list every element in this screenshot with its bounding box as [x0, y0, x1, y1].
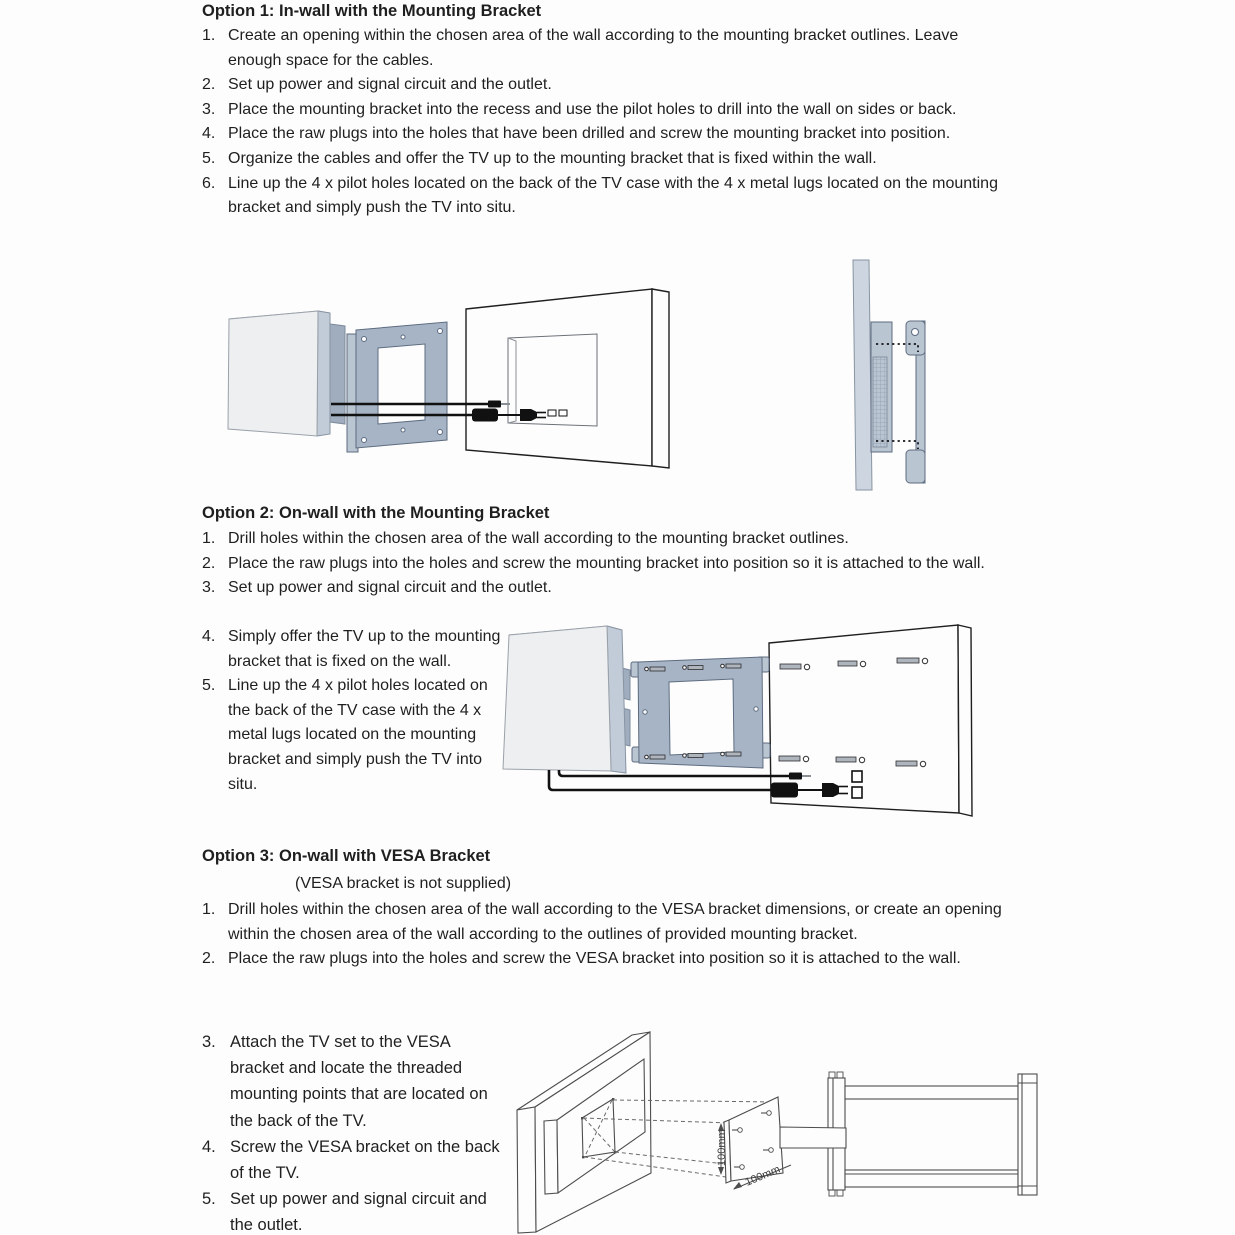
step: 4. Screw the VESA bracket on the back of…	[202, 1134, 502, 1186]
onwall-mounting-bracket	[631, 657, 770, 768]
wall-outlet-socket	[548, 410, 556, 416]
step-number: 4.	[202, 625, 228, 650]
power-plug-icon	[822, 783, 839, 797]
step-text: Attach the TV set to the VESA bracket an…	[230, 1029, 502, 1134]
option1-title: Option 1: In-wall with the Mounting Brac…	[202, 1, 541, 21]
diagram-vesa-bracket: 100mm 100mm	[508, 1026, 1058, 1235]
option2-title: Option 2: On-wall with the Mounting Brac…	[202, 503, 549, 523]
step-text: Set up power and signal circuit and the …	[228, 73, 1013, 98]
step-text: Place the raw plugs into the holes and s…	[228, 552, 1013, 577]
wall-outlet-socket	[559, 410, 567, 416]
step: 3. Set up power and signal circuit and t…	[202, 576, 1013, 601]
step-text: Set up power and signal circuit and the …	[230, 1186, 502, 1235]
step-text: Organize the cables and offer the TV up …	[228, 147, 1013, 172]
step-number: 3.	[202, 1029, 230, 1055]
option3-steps-full: 1. Drill holes within the chosen area of…	[202, 898, 1039, 972]
vesa-tv-back	[517, 1032, 651, 1233]
step: 3. Attach the TV set to the VESA bracket…	[202, 1029, 502, 1134]
step: 4. Place the raw plugs into the holes th…	[202, 122, 1013, 147]
option2-steps-full: 1. Drill holes within the chosen area of…	[202, 527, 1013, 601]
wall-outlet-socket	[852, 771, 862, 782]
step-number: 3.	[202, 98, 228, 123]
step-number: 6.	[202, 172, 228, 197]
step: 5. Line up the 4 x pilot holes located o…	[202, 674, 510, 797]
wall-slot	[838, 661, 857, 666]
signal-jack-icon	[789, 773, 802, 780]
step: 1. Drill holes within the chosen area of…	[202, 898, 1039, 947]
step: 2. Place the raw plugs into the holes an…	[202, 947, 1039, 972]
step: 6. Line up the 4 x pilot holes located o…	[202, 172, 1013, 221]
step-text: Place the mounting bracket into the rece…	[228, 98, 1013, 123]
vesa-wall-frame	[828, 1072, 1037, 1196]
step-number: 1.	[202, 24, 228, 49]
vesa-arm	[780, 1127, 846, 1148]
onwall-tv-panel	[503, 626, 630, 773]
power-adapter-icon	[472, 409, 498, 422]
step-text: Place the raw plugs into the holes and s…	[228, 947, 1039, 972]
step-text: Create an opening within the chosen area…	[228, 24, 1013, 73]
step-number: 2.	[202, 552, 228, 577]
side-view-tv	[853, 260, 872, 490]
option3-steps-column: 3. Attach the TV set to the VESA bracket…	[202, 1029, 502, 1235]
step-text: Line up the 4 x pilot holes located on t…	[228, 674, 510, 797]
inwall-wall-panel	[466, 289, 669, 468]
step-number: 5.	[202, 147, 228, 172]
power-adapter-icon	[771, 783, 798, 798]
step-number: 3.	[202, 576, 228, 601]
step: 2. Place the raw plugs into the holes an…	[202, 552, 1013, 577]
step-number: 2.	[202, 947, 228, 972]
step-number: 4.	[202, 122, 228, 147]
step: 1. Create an opening within the chosen a…	[202, 24, 1013, 73]
step: 1. Drill holes within the chosen area of…	[202, 527, 1013, 552]
wall-slot	[779, 756, 800, 761]
step-text: Set up power and signal circuit and the …	[228, 576, 1013, 601]
diagram-onwall-mounting	[495, 612, 985, 837]
wall-outlet-socket	[852, 787, 862, 798]
signal-jack-icon	[488, 401, 501, 408]
inwall-side-view	[853, 260, 925, 490]
power-plug-icon	[520, 409, 537, 421]
option3-note: (VESA bracket is not supplied)	[295, 872, 511, 896]
step-text: Screw the VESA bracket on the back of th…	[230, 1134, 502, 1186]
step-text: Simply offer the TV up to the mounting b…	[228, 625, 510, 674]
inwall-mounting-bracket	[347, 322, 447, 452]
manual-page: Option 1: In-wall with the Mounting Brac…	[0, 0, 1235, 1235]
step-text: Line up the 4 x pilot holes located on t…	[228, 172, 1013, 221]
step: 4. Simply offer the TV up to the mountin…	[202, 625, 510, 674]
option2-steps-column: 4. Simply offer the TV up to the mountin…	[202, 625, 510, 797]
step: 5. Organize the cables and offer the TV …	[202, 147, 1013, 172]
onwall-wall-panel	[769, 625, 972, 816]
step: 3. Place the mounting bracket into the r…	[202, 98, 1013, 123]
vesa-dim-vertical-label: 100mm	[716, 1129, 728, 1166]
step: 2. Set up power and signal circuit and t…	[202, 73, 1013, 98]
wall-slot	[897, 658, 919, 663]
wall-slot	[780, 664, 801, 669]
step-number: 1.	[202, 898, 228, 923]
step-number: 5.	[202, 1186, 230, 1212]
step-text: Place the raw plugs into the holes that …	[228, 122, 1013, 147]
diagram-inwall-mounting	[200, 254, 970, 500]
option3-title: Option 3: On-wall with VESA Bracket	[202, 846, 490, 866]
step-number: 1.	[202, 527, 228, 552]
step-number: 2.	[202, 73, 228, 98]
wall-slot	[836, 757, 856, 762]
step-number: 5.	[202, 674, 228, 699]
step-text: Drill holes within the chosen area of th…	[228, 898, 1039, 947]
step: 5. Set up power and signal circuit and t…	[202, 1186, 502, 1235]
step-number: 4.	[202, 1134, 230, 1160]
option1-steps: 1. Create an opening within the chosen a…	[202, 24, 1013, 221]
wall-slot	[896, 761, 917, 766]
inwall-tv-panel	[228, 311, 345, 436]
step-text: Drill holes within the chosen area of th…	[228, 527, 1013, 552]
